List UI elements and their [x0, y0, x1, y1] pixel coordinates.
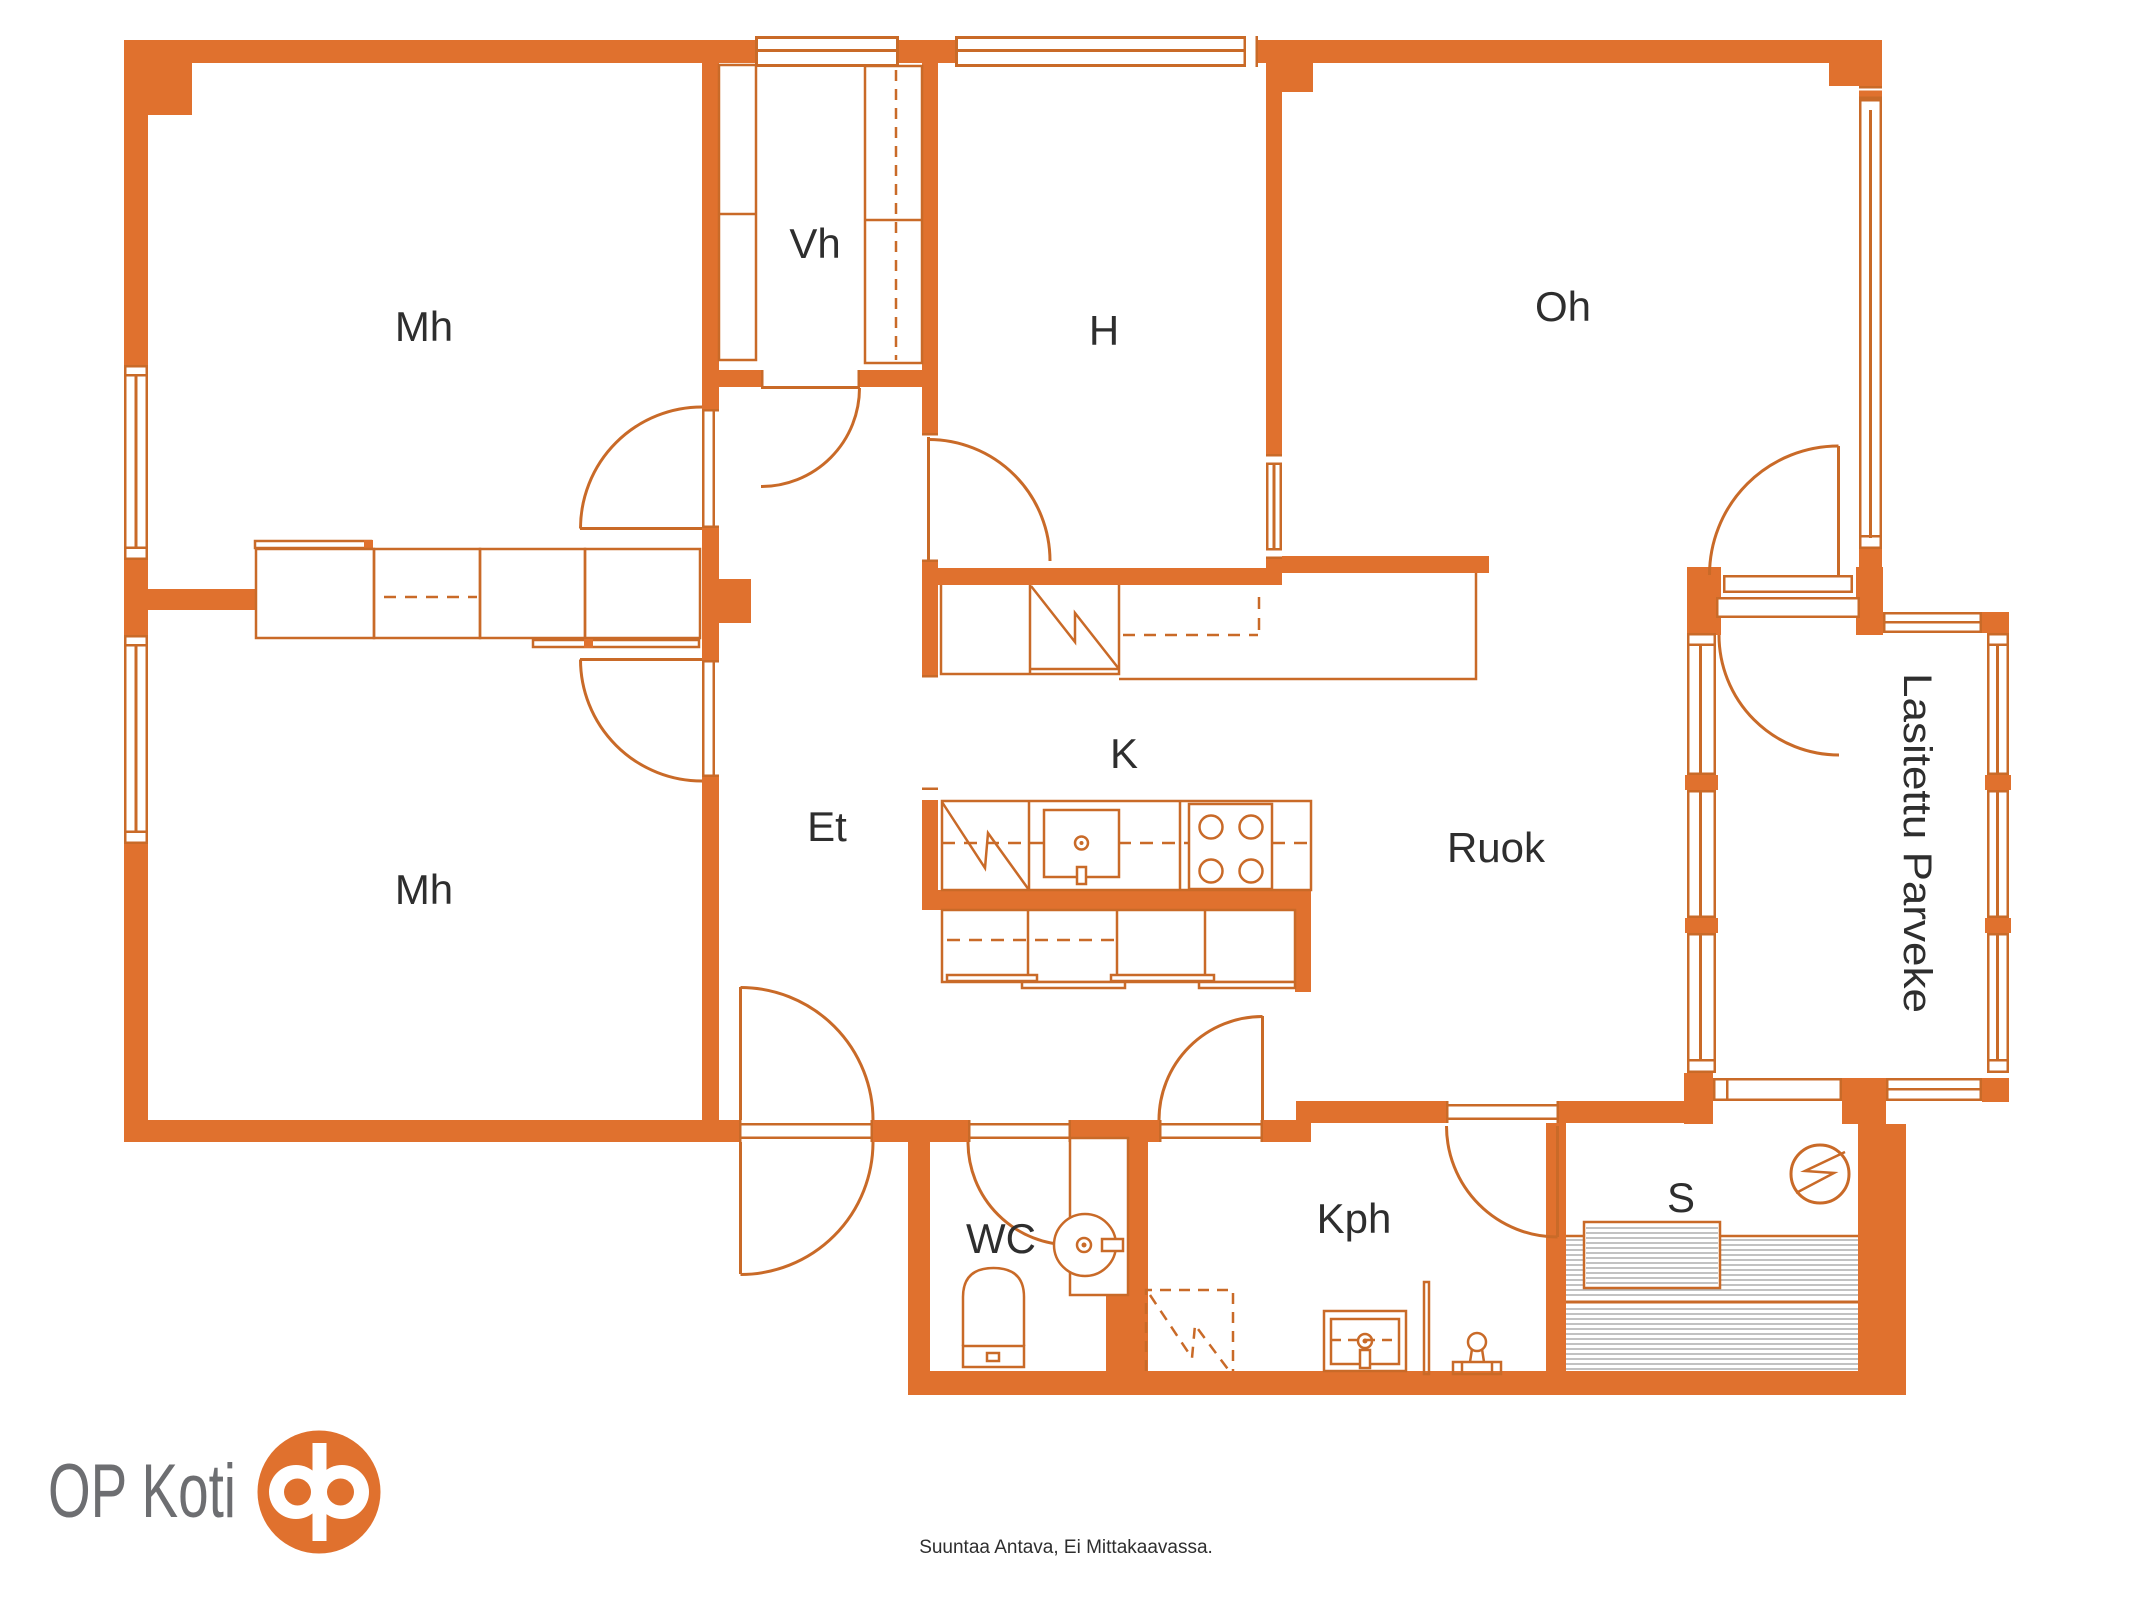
svg-text:Suuntaa Antava, Ei Mittakaavas: Suuntaa Antava, Ei Mittakaavassa. [919, 1537, 1213, 1558]
svg-text:K: K [1110, 730, 1138, 777]
svg-text:Oh: Oh [1535, 283, 1591, 330]
svg-text:Vh: Vh [789, 220, 840, 267]
svg-text:Mh: Mh [395, 866, 453, 913]
svg-text:Ruok: Ruok [1447, 824, 1546, 871]
svg-text:Lasitettu Parveke: Lasitettu Parveke [1895, 673, 1939, 1013]
svg-text:Kph: Kph [1317, 1195, 1392, 1242]
svg-text:WC: WC [966, 1215, 1036, 1262]
svg-text:Mh: Mh [395, 303, 453, 350]
svg-text:S: S [1667, 1174, 1695, 1221]
svg-text:H: H [1089, 307, 1119, 354]
svg-text:OP Koti: OP Koti [48, 1449, 236, 1534]
svg-text:Et: Et [807, 803, 847, 850]
